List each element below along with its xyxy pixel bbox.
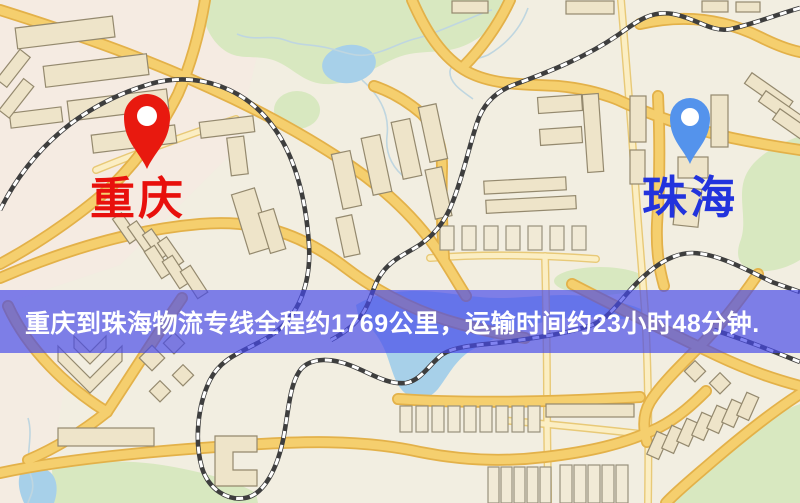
info-banner: 重庆到珠海物流专线全程约1769公里，运输时间约23小时48分钟. [0,290,800,353]
destination-city-label: 珠海 [642,175,738,220]
origin-pin-hole [137,106,157,126]
banner-text: 重庆到珠海物流专线全程约1769公里，运输时间约23小时48分钟. [0,304,760,340]
map-screen: 重庆 珠海 重庆到珠海物流专线全程约1769公里，运输时间约23小时48分钟. [0,0,800,503]
map-canvas [0,0,800,503]
destination-pin-hole [681,108,699,126]
origin-city-label: 重庆 [90,176,186,221]
